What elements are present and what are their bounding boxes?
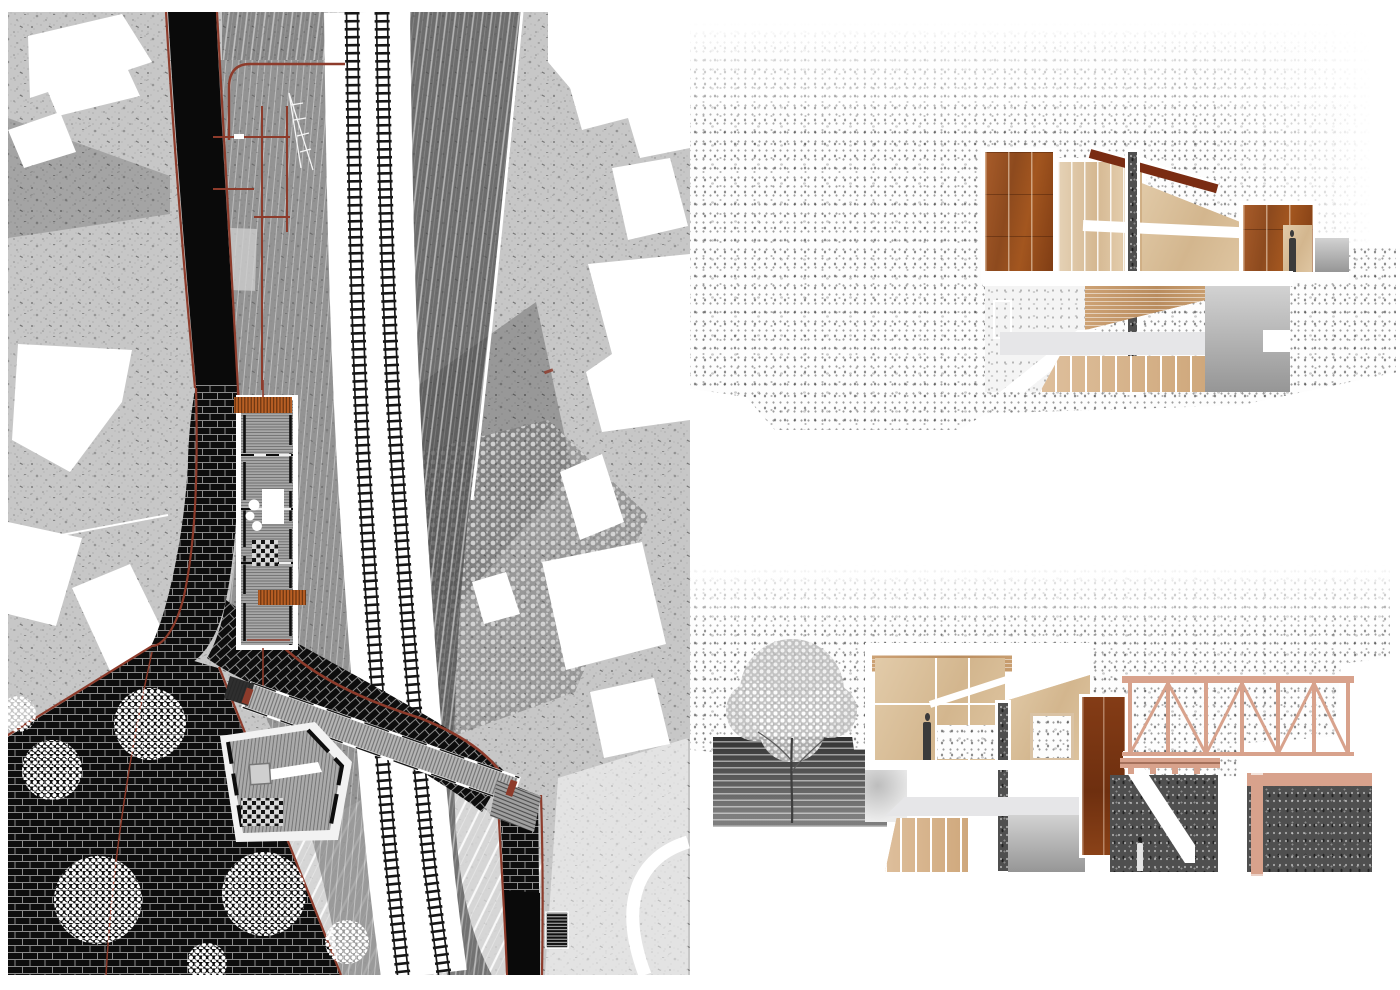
- deck-shadow-line: [1120, 762, 1220, 764]
- ground-notch: [1263, 330, 1290, 352]
- person-body: [923, 722, 931, 761]
- opening-view: [937, 725, 995, 759]
- deck-supports: [1128, 768, 1200, 774]
- steel-column: [998, 703, 1008, 871]
- level-gap: [983, 271, 1293, 286]
- person-figure: [1288, 230, 1297, 272]
- east-path-dark: [503, 890, 540, 975]
- grid-white-tick: [234, 134, 244, 139]
- lower-plywood-wall: [1040, 356, 1205, 392]
- pavilion-room: [249, 763, 270, 784]
- entry-ground: [1315, 238, 1349, 272]
- floor-gap: [865, 760, 1090, 770]
- corten-volume: [985, 152, 1053, 279]
- interior-plant: [252, 521, 262, 531]
- lower-ground-block: [1008, 815, 1085, 872]
- truss-top-chord: [1122, 676, 1354, 683]
- person-head: [1138, 837, 1142, 842]
- timber-truss-bridge: [1120, 670, 1365, 785]
- tree: [22, 740, 82, 800]
- person-figure: [922, 713, 933, 761]
- section-lower: [690, 555, 1400, 990]
- interior-checker: [252, 540, 278, 566]
- ground-mass-right: [1247, 773, 1372, 872]
- person-figure-walking: [1136, 837, 1144, 871]
- pavilion-checker: [241, 798, 283, 826]
- pink-column: [1251, 773, 1263, 876]
- stair-hatch: [234, 397, 292, 413]
- tree: [325, 920, 369, 964]
- tree: [222, 852, 306, 936]
- person-body: [1289, 238, 1295, 272]
- tree: [54, 856, 142, 944]
- tree-elevation: [710, 613, 880, 883]
- presentation-board: [0, 0, 1400, 990]
- interior-white: [262, 489, 284, 524]
- east-path-stair: [546, 912, 568, 948]
- person-body: [1137, 843, 1143, 871]
- person-head: [925, 713, 930, 721]
- interior-plant: [249, 500, 260, 511]
- interior-plant: [246, 512, 255, 521]
- tree-trunk: [791, 738, 792, 823]
- lower-plywood-wall: [885, 818, 968, 872]
- stair-hatch: [258, 590, 306, 605]
- tree: [114, 688, 186, 760]
- section-upper: [690, 8, 1400, 438]
- site-plan-svg: [8, 12, 690, 975]
- person-head: [1290, 230, 1294, 237]
- pink-deck-beam: [1247, 773, 1372, 786]
- truss-bottom-chord: [1122, 752, 1354, 756]
- window-opening: [1030, 713, 1074, 761]
